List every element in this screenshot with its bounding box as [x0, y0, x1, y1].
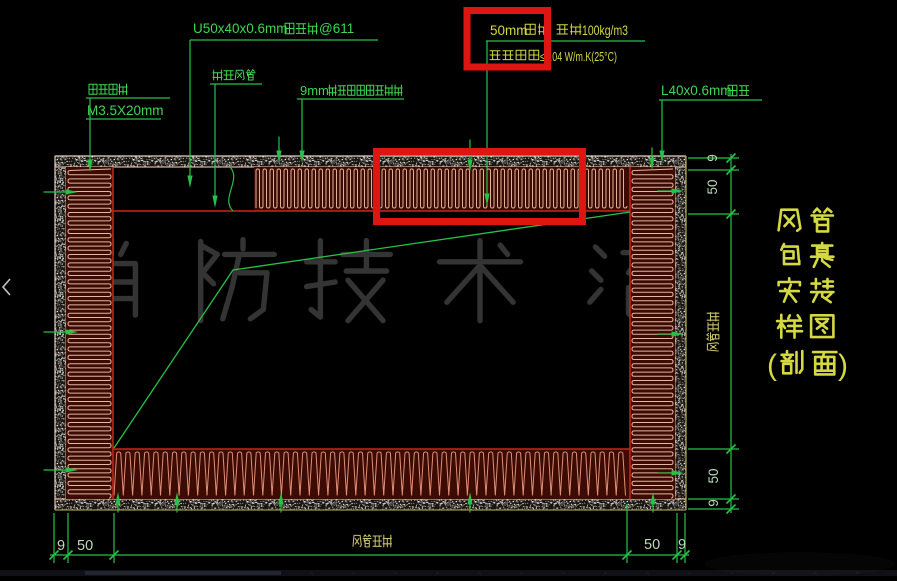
svg-text:9: 9 [57, 538, 65, 554]
svg-text:9: 9 [706, 499, 721, 507]
svg-text:9mm: 9mm [300, 83, 329, 98]
svg-text:50: 50 [705, 179, 720, 194]
svg-text:50: 50 [706, 468, 721, 483]
svg-text:100kg/m3: 100kg/m3 [582, 23, 628, 38]
svg-text:50: 50 [644, 537, 660, 553]
svg-text:@611: @611 [319, 21, 354, 36]
svg-text:9: 9 [678, 537, 686, 553]
svg-text:): ) [838, 349, 848, 382]
svg-text:U50x40x0.6mm: U50x40x0.6mm [193, 21, 288, 36]
svg-text:50mm: 50mm [490, 23, 528, 38]
svg-text:50: 50 [77, 538, 93, 554]
svg-text:(: ( [767, 349, 777, 382]
svg-text:≤0.04 W/m.K(25°C): ≤0.04 W/m.K(25°C) [540, 50, 617, 64]
svg-text:L40x0.6mm: L40x0.6mm [661, 83, 732, 98]
svg-text:M3.5X20mm: M3.5X20mm [87, 103, 164, 118]
svg-text:9: 9 [705, 154, 720, 162]
